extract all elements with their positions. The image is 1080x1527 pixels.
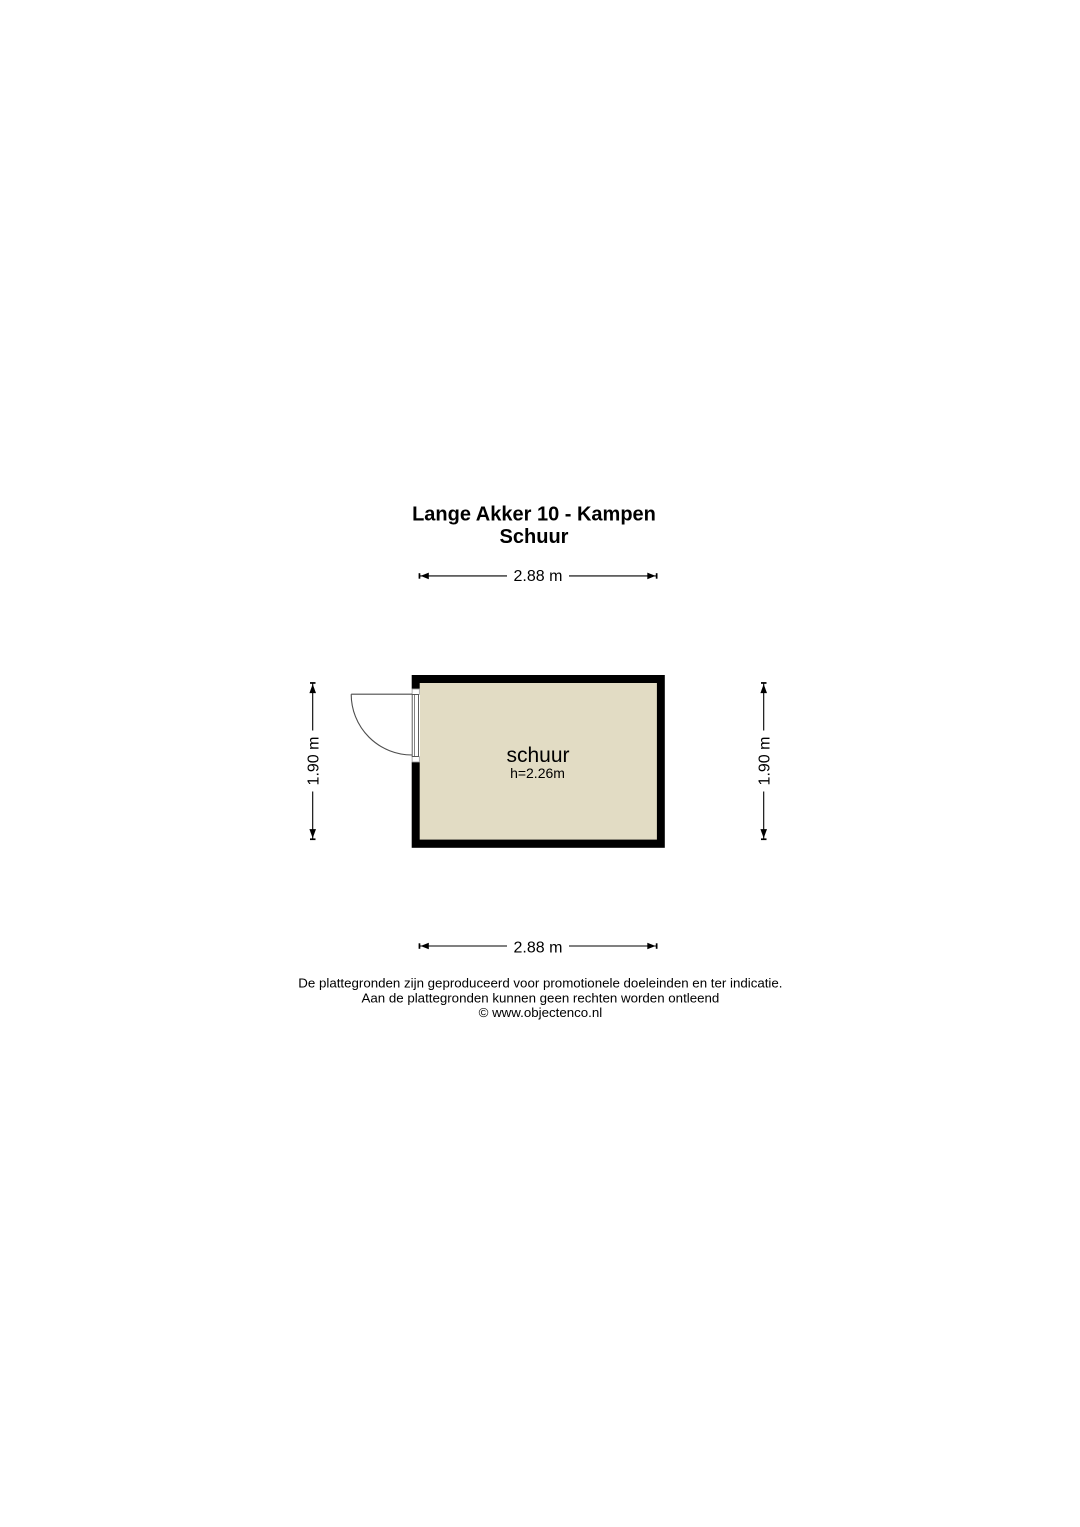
svg-text:Aan de plattegronden kunnen ge: Aan de plattegronden kunnen geen rechten…: [361, 990, 719, 1005]
svg-text:schuur: schuur: [506, 744, 569, 767]
svg-text:h=2.26m: h=2.26m: [510, 765, 565, 781]
svg-text:1.90 m: 1.90 m: [306, 737, 323, 786]
svg-text:2.88 m: 2.88 m: [514, 939, 563, 956]
svg-text:2.88 m: 2.88 m: [514, 568, 563, 585]
svg-text:Lange Akker 10 - Kampen: Lange Akker 10 - Kampen: [412, 504, 656, 526]
svg-text:Schuur: Schuur: [500, 526, 569, 548]
svg-text:1.90 m: 1.90 m: [757, 737, 774, 786]
svg-text:© www.objectenco.nl: © www.objectenco.nl: [479, 1005, 603, 1020]
svg-text:De plattegronden zijn geproduc: De plattegronden zijn geproduceerd voor …: [298, 975, 782, 990]
